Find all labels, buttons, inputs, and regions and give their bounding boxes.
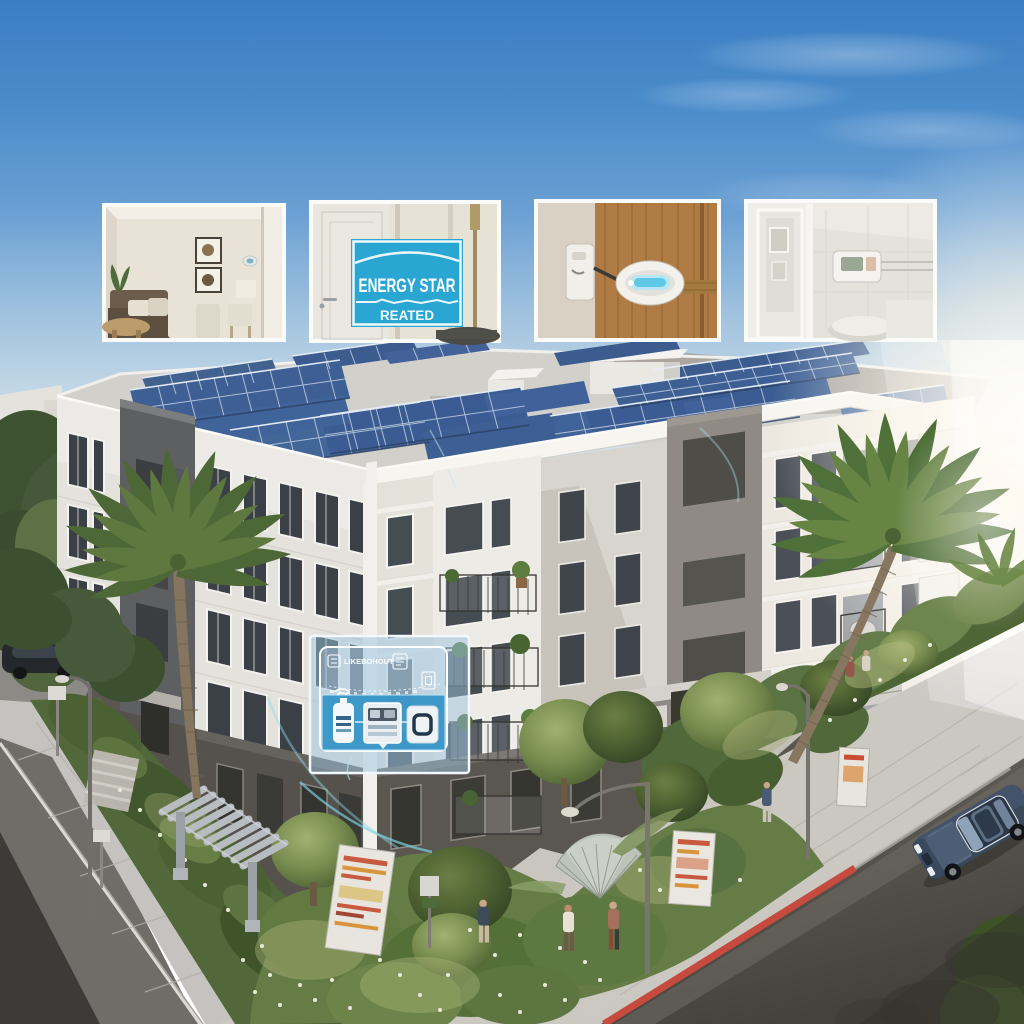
svg-text:ENERGY STAR: ENERGY STAR xyxy=(359,276,456,297)
svg-text:REATED: REATED xyxy=(380,308,434,323)
svg-text:LIKEBOHOUT: LIKEBOHOUT xyxy=(344,657,394,666)
